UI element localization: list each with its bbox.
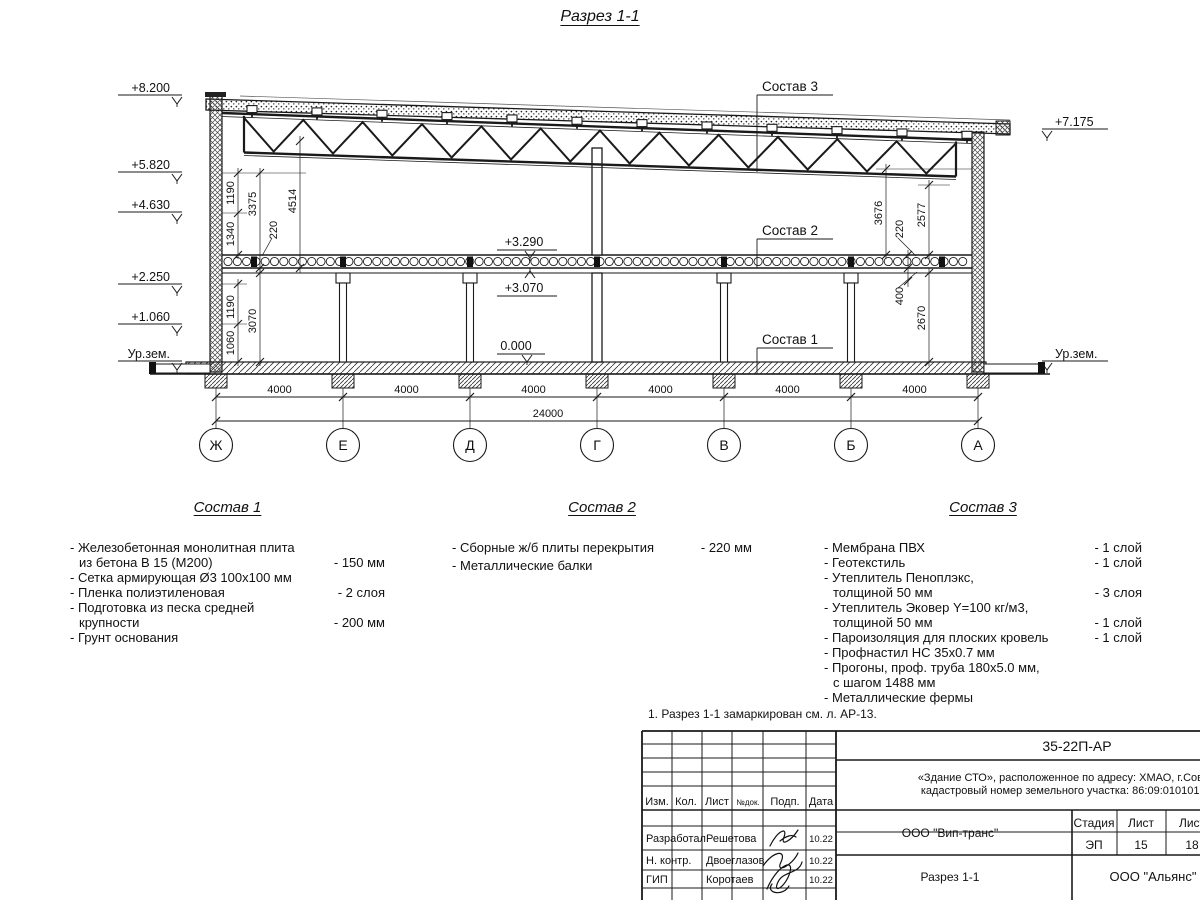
dim-1340: 1340: [225, 222, 237, 246]
date-ncontr: 10.22: [809, 856, 833, 867]
col-izm: Изм.: [645, 796, 669, 808]
col-kol: Кол.: [675, 796, 697, 808]
roof: [206, 96, 1010, 135]
object-line1: «Здание СТО», расположенное по адресу: Х…: [918, 772, 1200, 784]
sostav1-list: Состав 1 - Железобетонная монолитная пли…: [70, 500, 385, 645]
callout-sostav1: Состав 1: [762, 332, 818, 347]
callout-sostav3: Состав 3: [762, 79, 818, 94]
mark-0000: 0.000: [500, 339, 531, 353]
signature-ncontr-gip: [763, 853, 802, 893]
list-item: - Грунт основания: [70, 630, 385, 645]
role-ncontr: Н. контр.: [646, 855, 691, 867]
mark-3070: +3.070: [505, 281, 544, 295]
axis-label: Д: [465, 437, 475, 453]
doc-number: 35-22П-АР: [1042, 738, 1111, 754]
list-item: - Сборные ж/б плиты перекрытия- 220 мм: [452, 540, 752, 555]
generated-structure: ЖЕДГВБА400040004000400040004000: [118, 95, 1108, 462]
floor-slab: [222, 255, 972, 273]
left-wall: [205, 92, 226, 372]
dim-bay: 4000: [521, 384, 545, 396]
mark-4630: +4.630: [131, 198, 170, 212]
col-data: Дата: [809, 796, 834, 808]
axis-label: В: [719, 437, 728, 453]
col-list: Лист: [705, 796, 729, 808]
mark-7175: +7.175: [1055, 115, 1094, 129]
dim-bay: 4000: [775, 384, 799, 396]
list-item: - Подготовка из песка средней крупности-…: [70, 600, 385, 630]
dim-1190-u: 1190: [225, 181, 237, 205]
axis-label: Б: [846, 437, 855, 453]
sheets-label: Лист: [1179, 816, 1200, 830]
mark-ground-left: Ур.зем.: [128, 347, 170, 361]
sheets-value: 18: [1185, 838, 1199, 852]
mark-ground-right: Ур.зем.: [1055, 347, 1097, 361]
org-right: ООО "Альянс": [1110, 869, 1197, 884]
axis-label: Е: [338, 437, 347, 453]
dim-220-r: 220: [894, 220, 906, 238]
dim-bay: 4000: [648, 384, 672, 396]
dim-bay: 4000: [394, 384, 418, 396]
list-item: - Сетка армирующая Ø3 100х100 мм: [70, 570, 385, 585]
axis-label: А: [973, 437, 983, 453]
dim-400: 400: [894, 287, 906, 305]
sostav3-list: Состав 3 - Мембрана ПВХ- 1 слой - Геотек…: [824, 500, 1142, 705]
col-podp: Подп.: [770, 796, 799, 808]
axis-label: Г: [593, 437, 601, 453]
dim-1190-d: 1190: [225, 295, 237, 319]
sostav2-list: Состав 2 - Сборные ж/б плиты перекрытия-…: [452, 500, 752, 576]
org-mid: ООО "Вип-транс": [902, 826, 999, 840]
object-line2: кадастровый номер земельного участка: 86…: [921, 785, 1200, 797]
axis-label: Ж: [210, 437, 223, 453]
list-item: - Пленка полиэтиленовая- 2 слоя: [70, 585, 385, 600]
list-item: - Пароизоляция для плоских кровель- 1 сл…: [824, 630, 1142, 645]
mark-3290: +3.290: [505, 235, 544, 249]
list-item: - Прогоны, проф. труба 180х5.0 мм, с шаг…: [824, 660, 1142, 690]
ground-floor: [149, 362, 1050, 374]
dim-3676: 3676: [873, 201, 885, 225]
list-item: - Профнастил НС 35х0.7 мм: [824, 645, 1142, 660]
mark-1060-el: +1.060: [131, 310, 170, 324]
mark-8200: +8.200: [131, 81, 170, 95]
dim-4514: 4514: [287, 189, 299, 213]
list-item: - Утеплитель Пеноплэкс, толщиной 50 мм- …: [824, 570, 1142, 600]
center-column: [592, 148, 602, 362]
right-wall: [972, 132, 984, 372]
sostav2-title: Состав 2: [452, 500, 752, 515]
stage-value: ЭП: [1085, 838, 1102, 852]
list-item: - Железобетонная монолитная плита из бет…: [70, 540, 385, 570]
dim-3375: 3375: [247, 192, 259, 216]
role-developer: Разработал: [646, 833, 706, 845]
name-ncontr: Двоеглазов: [706, 855, 765, 867]
col-ndok: №док.: [736, 798, 759, 807]
callout-sostav2: Состав 2: [762, 223, 818, 238]
mark-2250: +2.250: [131, 270, 170, 284]
mark-5820: +5.820: [131, 158, 170, 172]
dim-3070: 3070: [247, 309, 259, 333]
dim-1060: 1060: [225, 331, 237, 355]
stage-label: Стадия: [1074, 816, 1115, 830]
signature-developer: [770, 830, 798, 846]
dim-2670: 2670: [916, 306, 928, 330]
dim-220-l: 220: [268, 221, 280, 239]
section-drawing: ЖЕДГВБА400040004000400040004000 24000 11…: [0, 0, 1200, 500]
signatures: [763, 830, 802, 893]
date-developer: 10.22: [809, 834, 833, 845]
dim-bay: 4000: [267, 384, 291, 396]
role-gip: ГИП: [646, 874, 668, 886]
name-developer: Решетова: [706, 833, 757, 845]
date-gip: 10.22: [809, 875, 833, 886]
dim-bay: 4000: [902, 384, 926, 396]
sheet-value: 15: [1134, 838, 1148, 852]
list-item: - Геотекстиль- 1 слой: [824, 555, 1142, 570]
sostav1-title: Состав 1: [70, 500, 385, 515]
name-gip: Коротаев: [706, 874, 754, 886]
list-item: - Мембрана ПВХ- 1 слой: [824, 540, 1142, 555]
title-block: 35-22П-АР «Здание СТО», расположенное по…: [0, 700, 1200, 900]
dim-total: 24000: [533, 408, 564, 420]
sheet-label: Лист: [1128, 816, 1155, 830]
list-item: - Утеплитель Эковер Y=100 кг/м3, толщино…: [824, 600, 1142, 630]
sostav3-title: Состав 3: [824, 500, 1142, 515]
list-item: - Металлические балки: [452, 558, 752, 573]
sheet-name: Разрез 1-1: [921, 870, 980, 884]
dim-2577: 2577: [916, 203, 928, 227]
drawing-sheet: { "title": "Разрез 1-1", "note": "1. Раз…: [0, 0, 1200, 900]
